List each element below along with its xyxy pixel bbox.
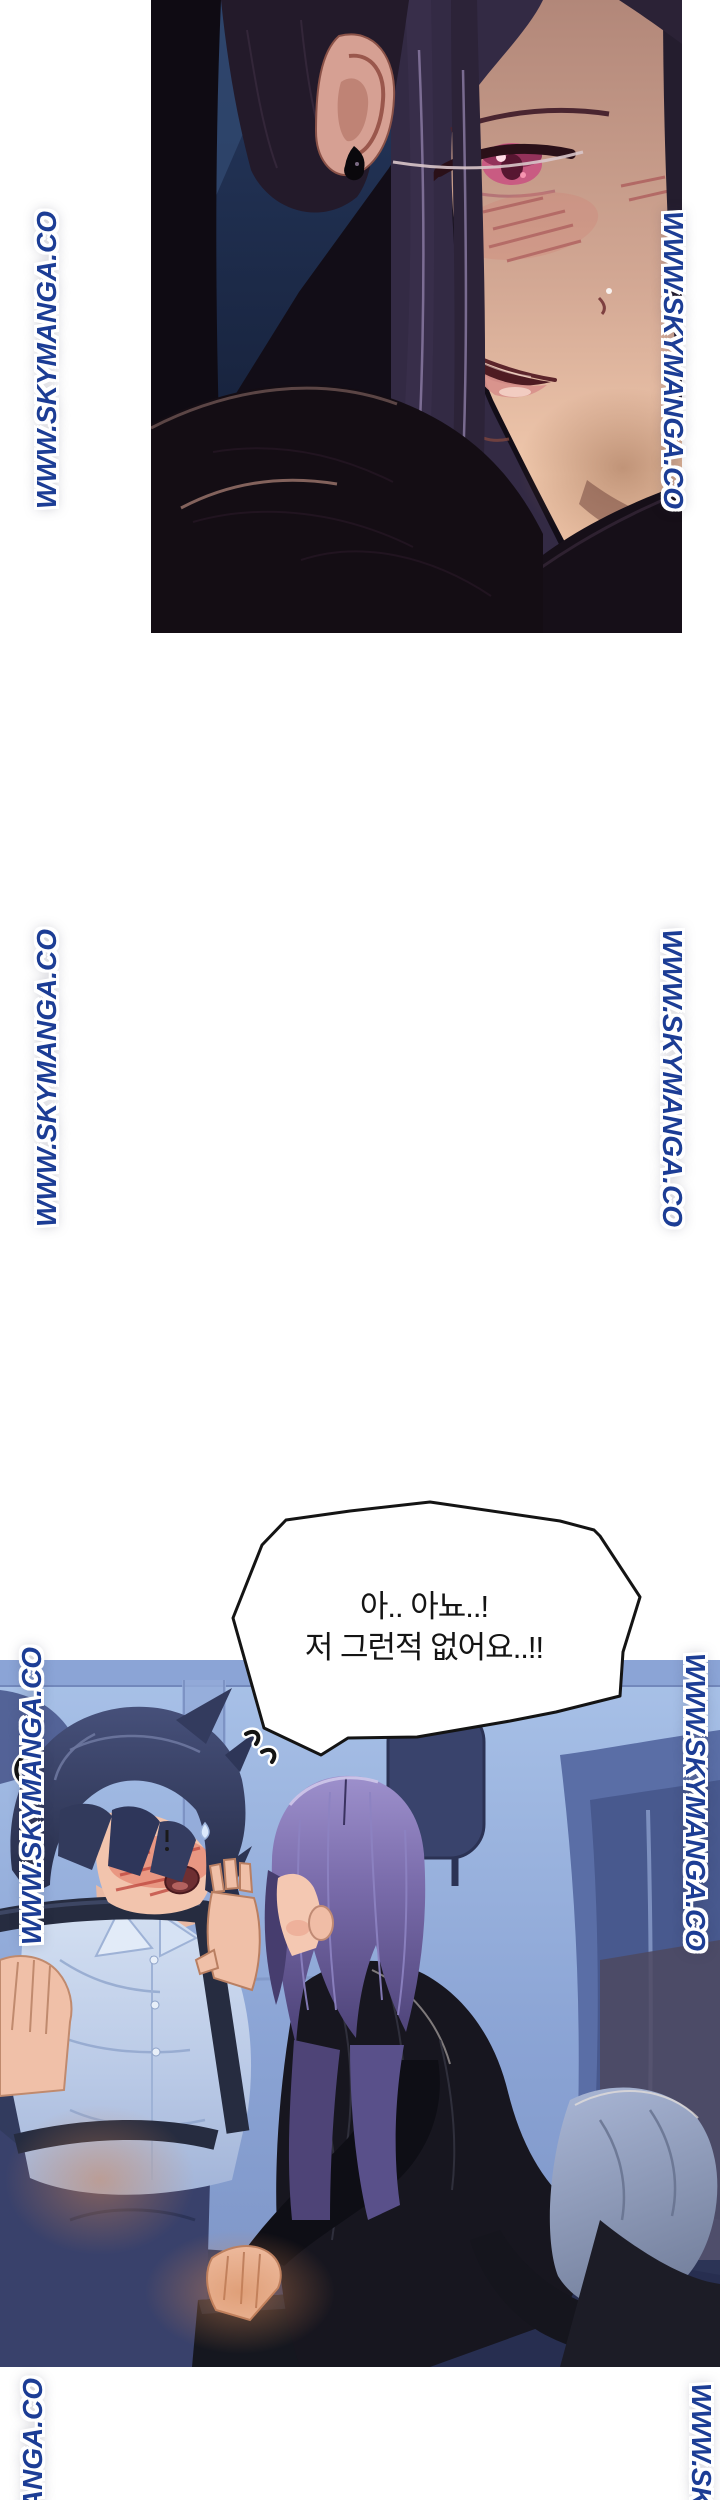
shirt-button xyxy=(150,1956,158,1964)
fingers xyxy=(210,1859,252,1892)
woman-ear xyxy=(309,1906,333,1940)
panel-1-illustration xyxy=(151,0,682,633)
shirt-button xyxy=(151,2001,159,2009)
manga-page: 아.. 아뇨..! 저 그런적 없어요..!! WWW.SKYMANGA.CO … xyxy=(0,0,720,2500)
man-left-hand xyxy=(0,1956,72,2096)
speech-bubble-line-1: 아.. 아뇨..! xyxy=(210,1586,638,1627)
speech-bubble: 아.. 아뇨..! 저 그런적 없어요..!! xyxy=(200,1488,648,1772)
tongue xyxy=(172,1882,188,1890)
speech-bubble-text: 아.. 아뇨..! 저 그런적 없어요..!! xyxy=(210,1586,638,1668)
panel-1-artwork xyxy=(151,0,682,633)
surprise-mark xyxy=(165,1830,169,1851)
speech-bubble-line-2: 저 그런적 없어요..!! xyxy=(210,1627,638,1668)
shirt-button xyxy=(152,2048,160,2056)
skin-highlight-dot xyxy=(606,288,612,294)
